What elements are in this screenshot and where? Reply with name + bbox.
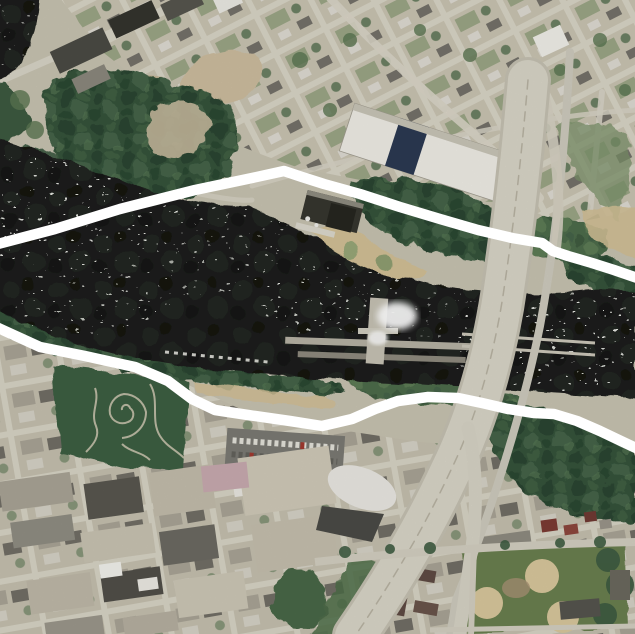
aerial-photo-canvas <box>0 0 635 634</box>
photo-grain-overlay <box>0 0 635 634</box>
aerial-photo-figure <box>0 0 635 634</box>
